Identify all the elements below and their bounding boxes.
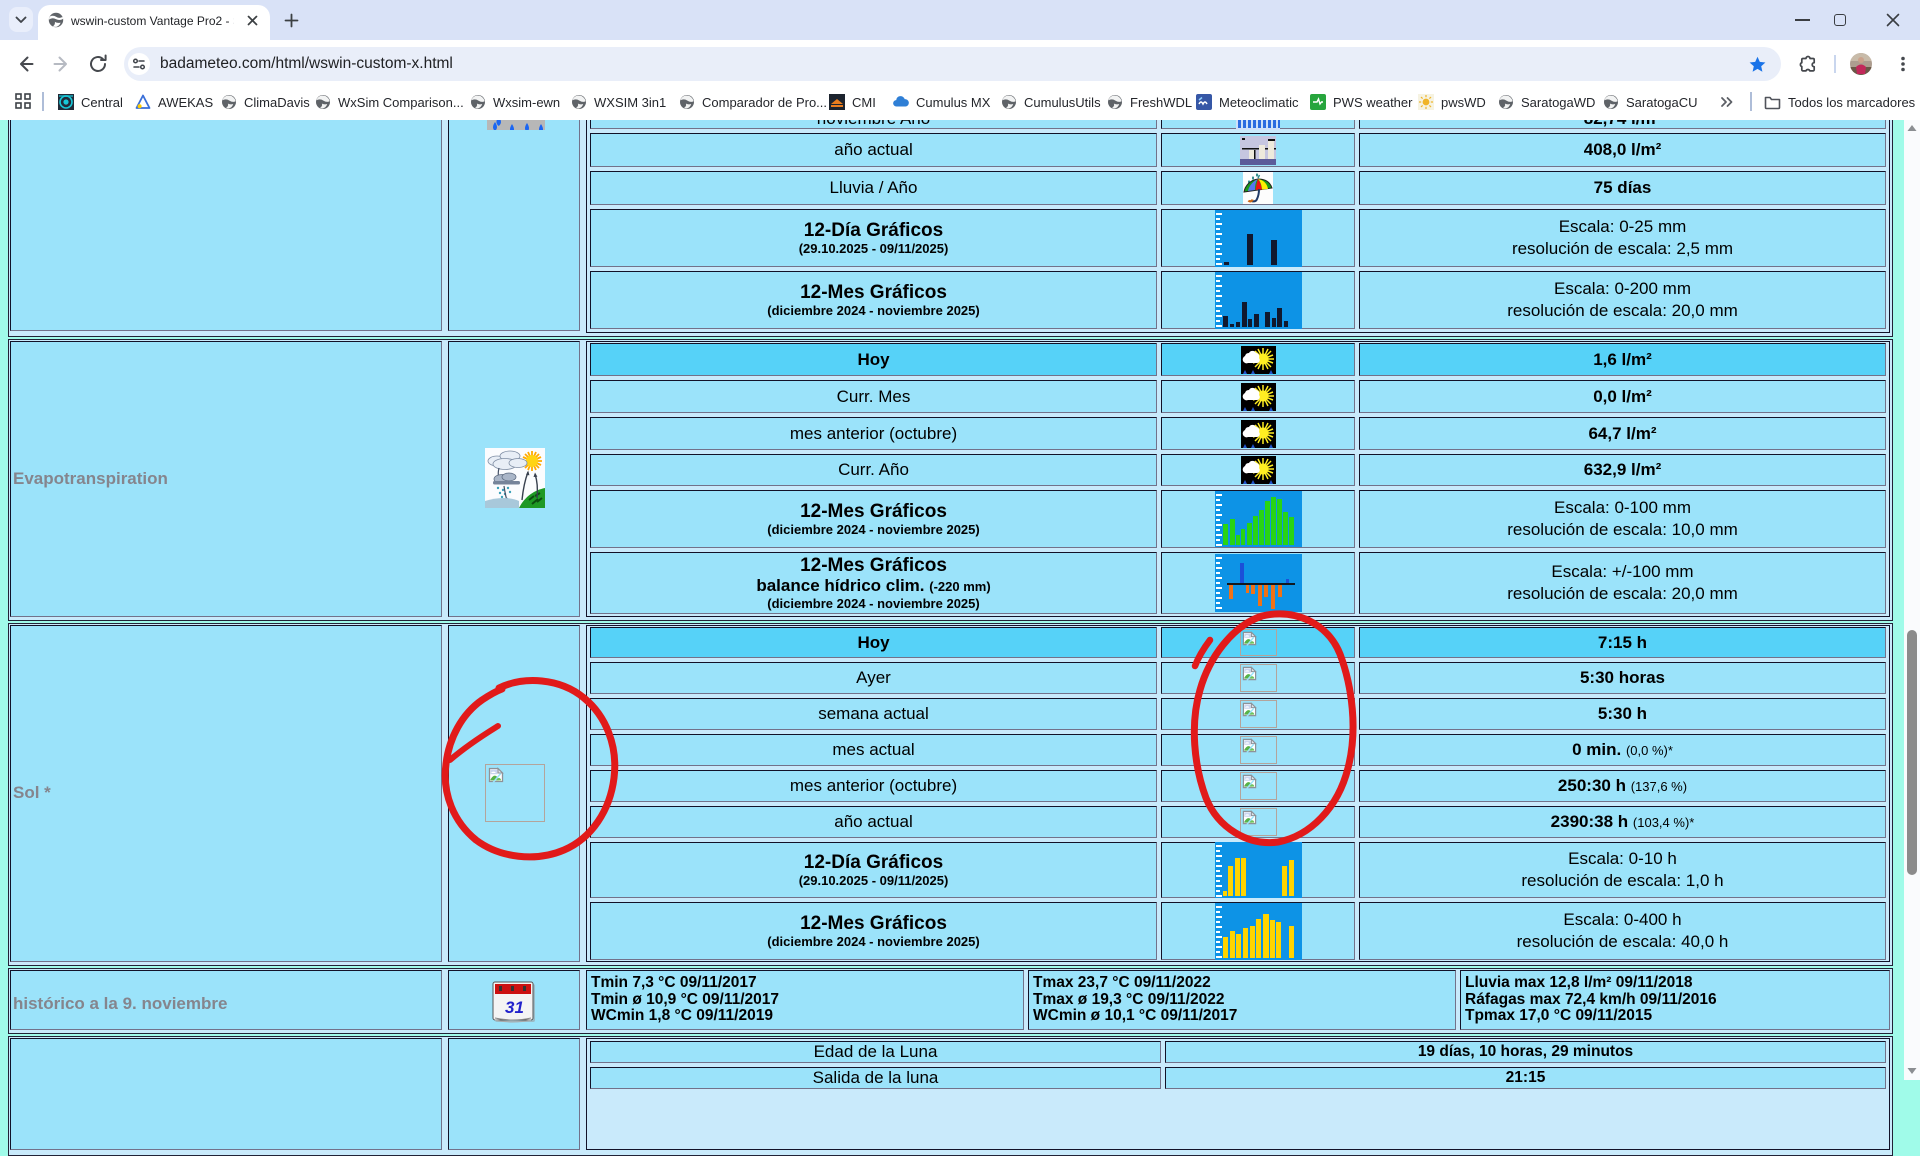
svg-text:31: 31 xyxy=(505,998,524,1017)
